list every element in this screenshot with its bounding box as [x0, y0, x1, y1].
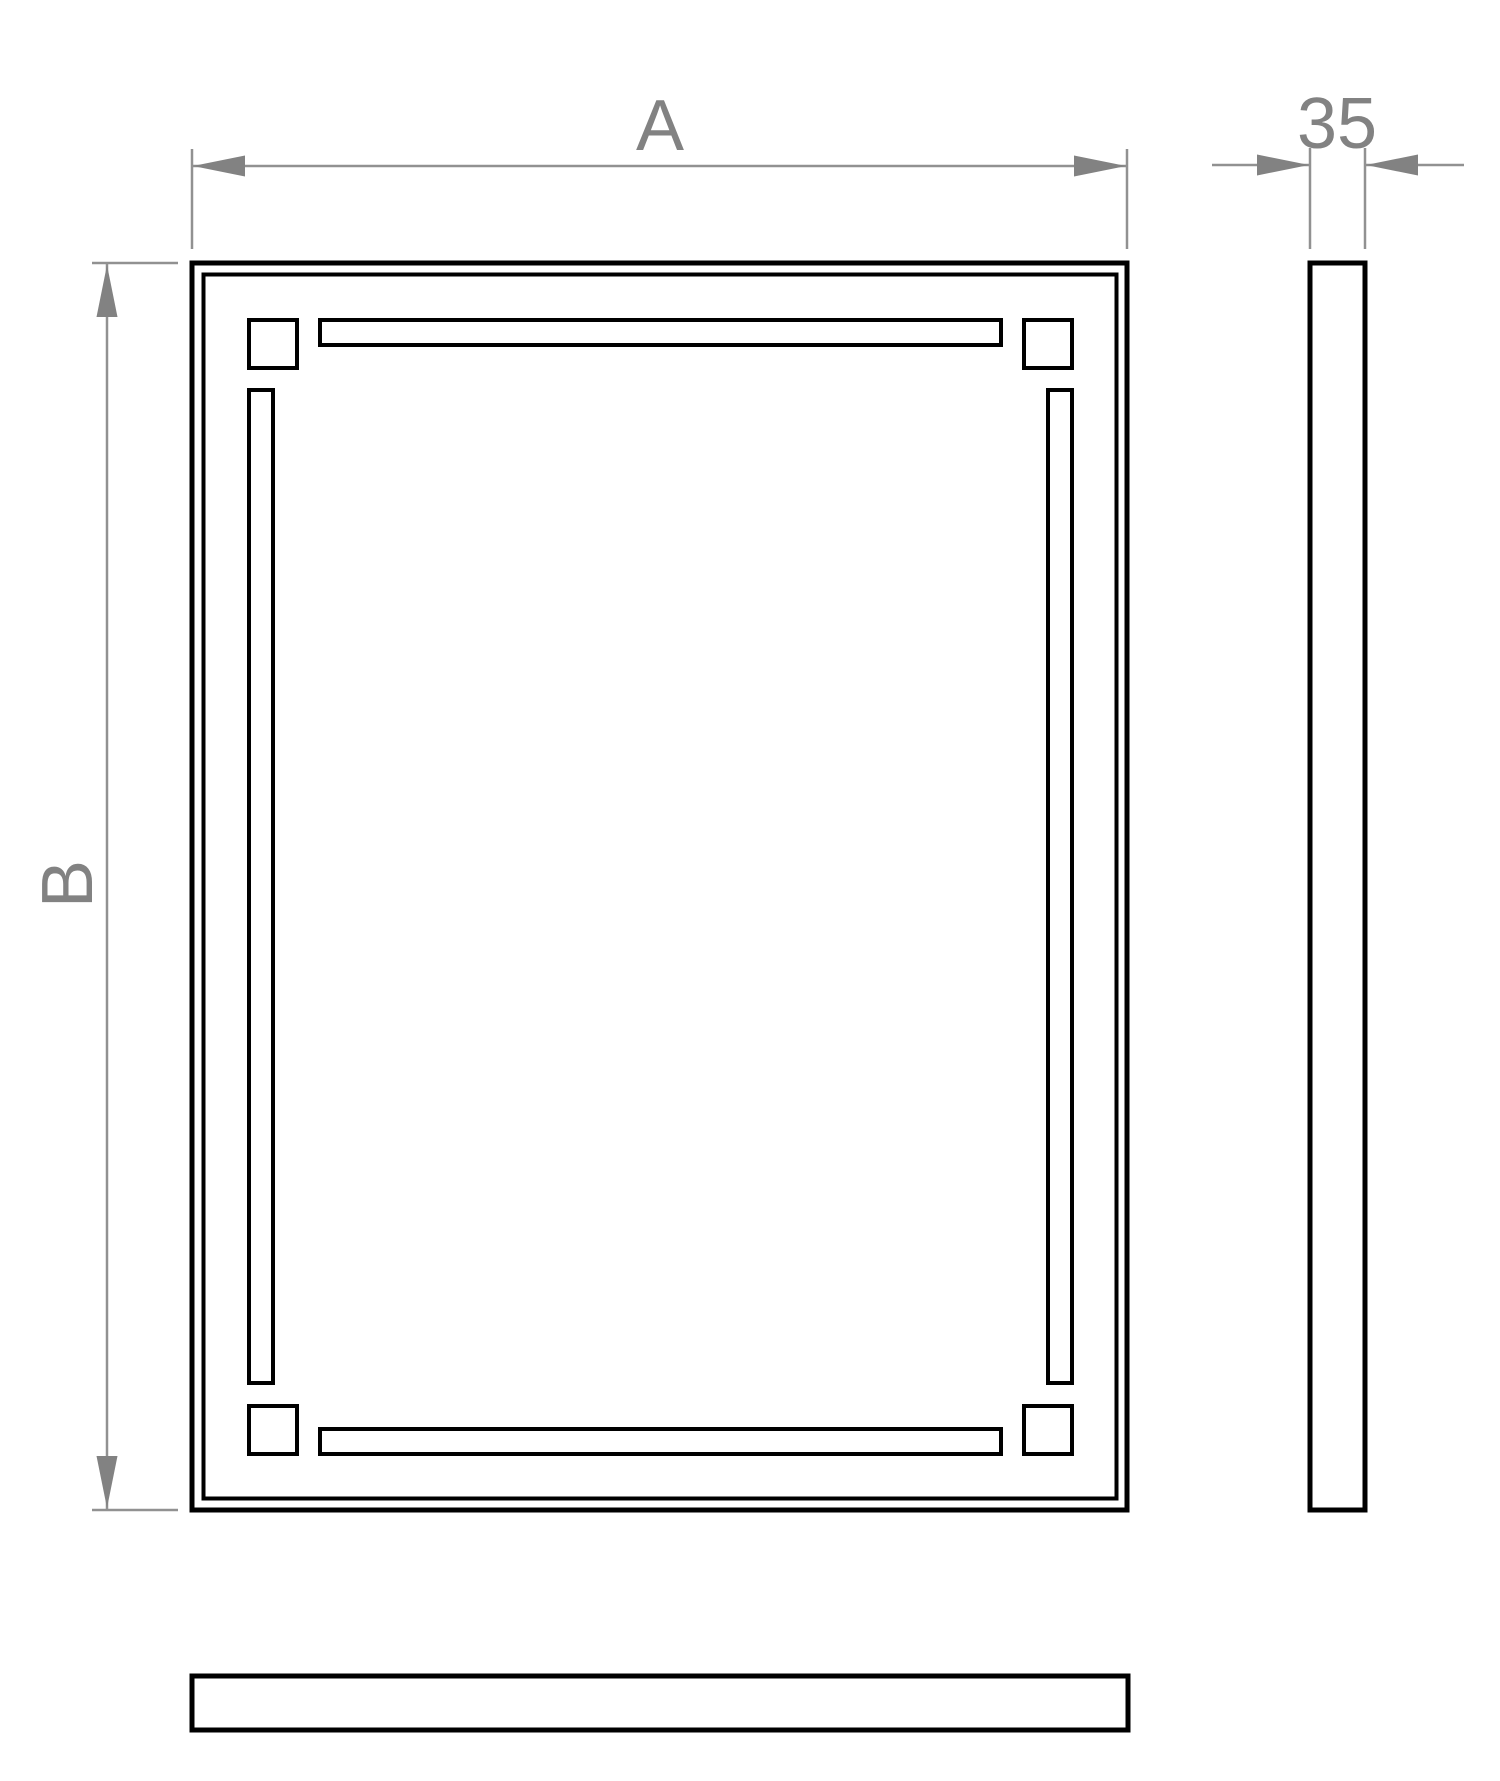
front-outer-frame	[192, 263, 1127, 1510]
border-rail-left	[249, 390, 273, 1383]
arrowhead-width-right	[1074, 156, 1126, 177]
corner-square-bottom-left	[249, 1406, 297, 1454]
dimension-height: B	[28, 263, 178, 1510]
dimension-height-label: B	[28, 860, 108, 908]
dimension-width-label: A	[636, 86, 684, 166]
dimension-depth-label: 35	[1297, 84, 1377, 164]
arrowhead-width-left	[193, 156, 245, 177]
arrowhead-height-bottom	[97, 1456, 118, 1508]
arrowhead-height-top	[97, 265, 118, 317]
bottom-view-outline	[192, 1676, 1128, 1730]
side-view	[1310, 263, 1365, 1510]
border-rail-bottom	[320, 1429, 1001, 1454]
front-inner-frame	[204, 275, 1117, 1499]
dimension-depth: 35	[1212, 84, 1464, 249]
bottom-view	[192, 1676, 1128, 1730]
corner-square-top-left	[249, 320, 297, 368]
border-rail-right	[1048, 390, 1072, 1383]
front-view	[192, 263, 1127, 1510]
side-view-outline	[1310, 263, 1365, 1510]
technical-drawing-canvas: A B 35	[0, 0, 1500, 1781]
corner-square-top-right	[1024, 320, 1072, 368]
border-rail-top	[320, 320, 1001, 345]
dimension-width: A	[192, 86, 1127, 249]
corner-square-bottom-right	[1024, 1406, 1072, 1454]
